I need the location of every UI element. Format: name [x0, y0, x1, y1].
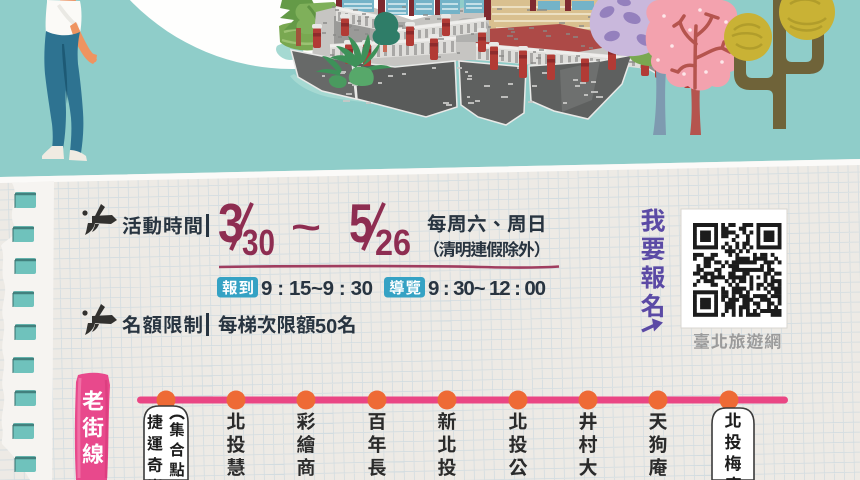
svg-text:5: 5 — [349, 192, 373, 254]
svg-text:9 : 15~9 : 30: 9 : 15~9 : 30 — [261, 277, 373, 300]
svg-text:30: 30 — [242, 222, 275, 263]
svg-text:~: ~ — [291, 207, 321, 249]
svg-text:3: 3 — [218, 192, 244, 254]
svg-text:26: 26 — [375, 222, 411, 263]
svg-text:50: 50 — [315, 316, 337, 338]
svg-text:9 : 30~ 12 : 00: 9 : 30~ 12 : 00 — [428, 277, 546, 300]
